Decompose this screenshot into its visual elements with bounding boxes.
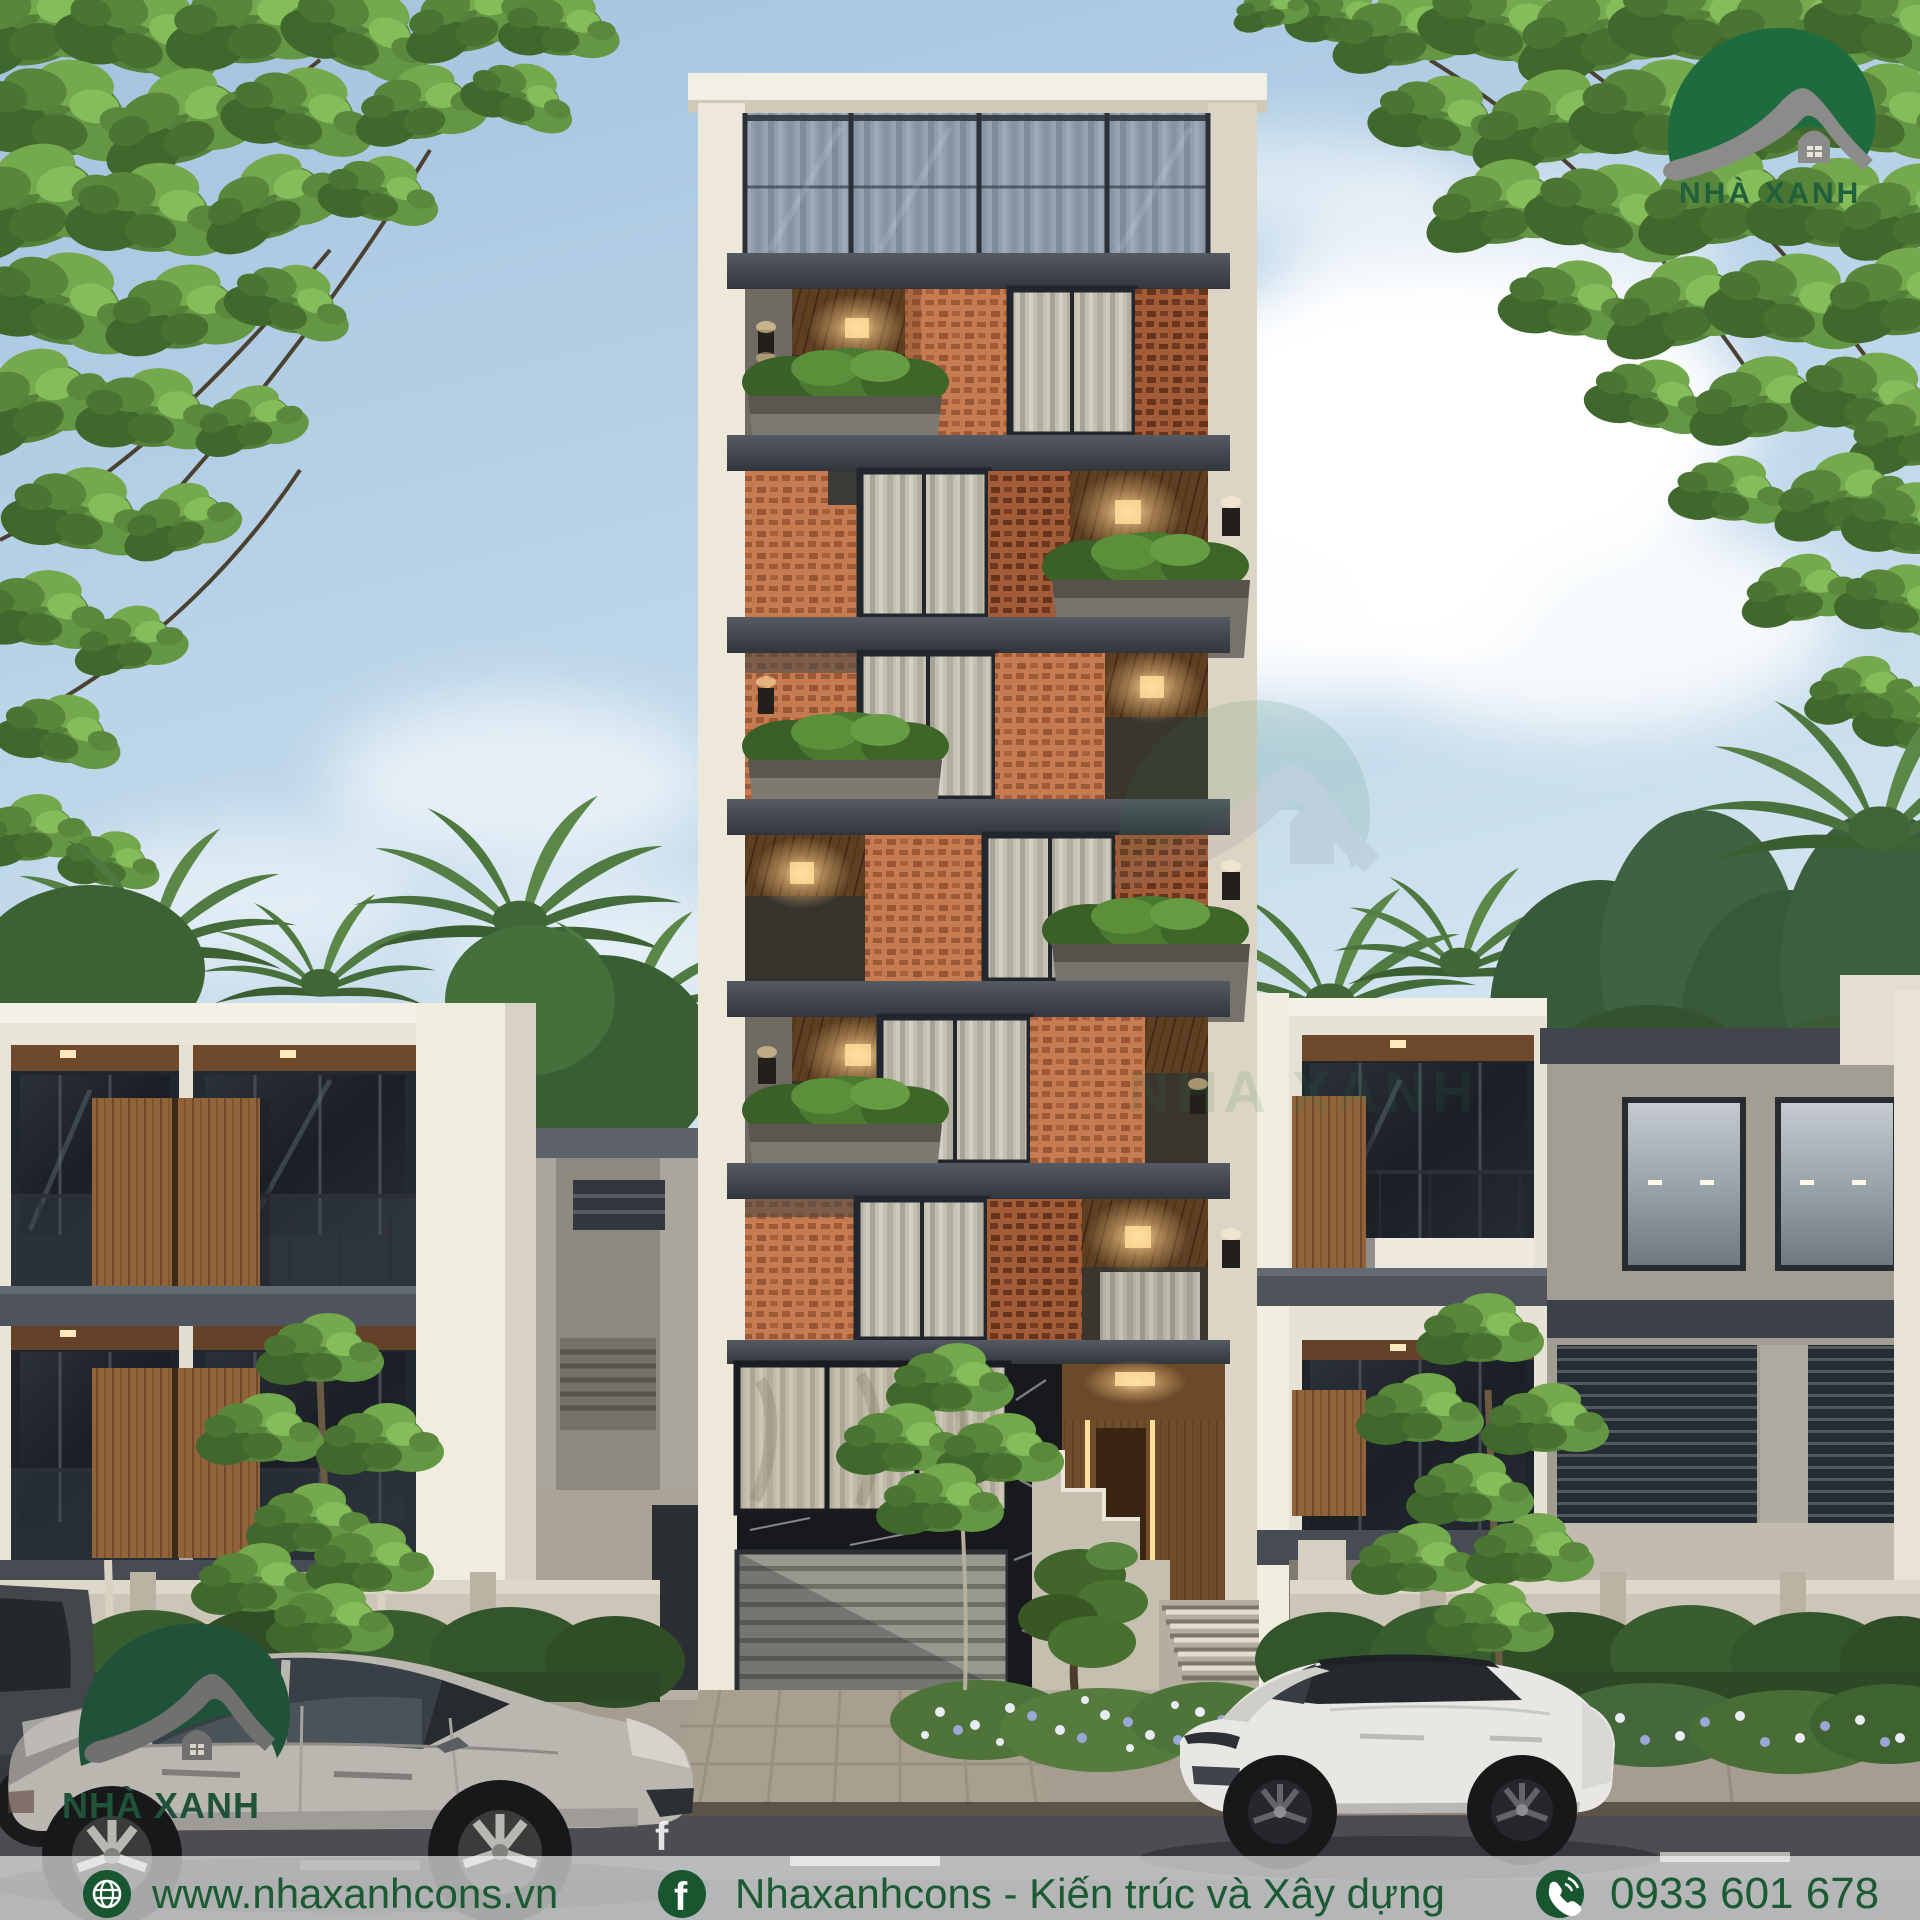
svg-text:www.nhaxanhcons.vn: www.nhaxanhcons.vn <box>151 1870 558 1917</box>
svg-text:NHÀ XANH: NHÀ XANH <box>1679 176 1861 210</box>
svg-text:NHA XANH: NHA XANH <box>1128 1060 1480 1125</box>
svg-text:Nhaxanhcons - Kiến trúc và Xây: Nhaxanhcons - Kiến trúc và Xây dựng <box>735 1870 1445 1917</box>
svg-text:0933 601 678: 0933 601 678 <box>1610 1869 1879 1918</box>
svg-text:f: f <box>655 1815 669 1859</box>
svg-text:NHÀ XANH: NHÀ XANH <box>62 1785 260 1826</box>
svg-text:f: f <box>674 1875 688 1919</box>
